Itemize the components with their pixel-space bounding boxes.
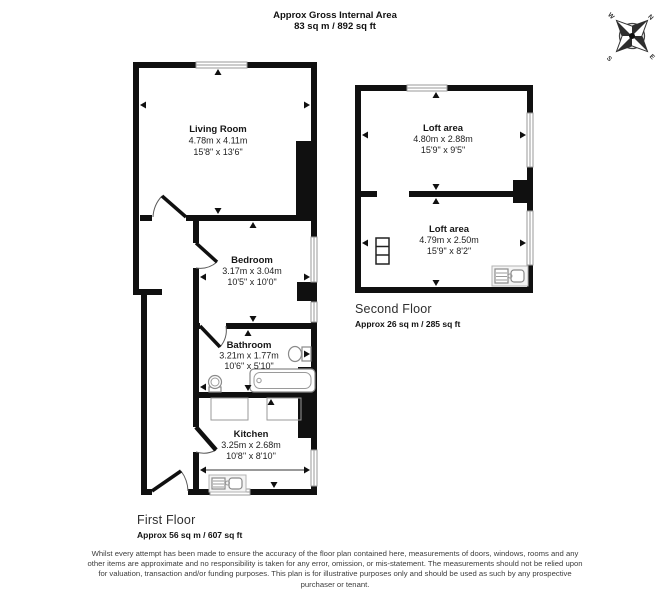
floorplan-page: Approx Gross Internal Area 83 sq m / 892… <box>0 0 670 593</box>
door-kitchen <box>196 427 216 453</box>
bathroom-metric: 3.21m x 1.77m <box>219 351 279 361</box>
loft-sink-icon <box>492 266 528 286</box>
chimney-breast-living <box>296 141 317 221</box>
kitchen-metric: 3.25m x 2.68m <box>221 440 281 450</box>
bathroom-label: Bathroom <box>227 340 272 351</box>
living-room-label: Living Room <box>189 124 247 135</box>
window-kitchen-side <box>311 450 317 486</box>
window-bedroom-upper <box>311 237 317 282</box>
bedroom-metric: 3.17m x 3.04m <box>222 266 282 276</box>
bedroom-imperial: 10'5" x 10'0" <box>227 277 276 287</box>
second-floor-area: Approx 26 sq m / 285 sq ft <box>355 319 460 329</box>
first-floor-room-labels: Living Room 4.78m x 4.11m 15'8" x 13'6" … <box>189 124 282 461</box>
door-bedroom <box>196 243 217 268</box>
bathtub-icon <box>250 369 315 392</box>
first-floor-doors <box>152 196 226 491</box>
door-front-entrance <box>152 471 188 491</box>
kitchen-imperial: 10'8'' x 8'10'' <box>226 451 276 461</box>
loft-lower-label: Loft area <box>429 224 470 235</box>
first-floor-plan: Living Room 4.78m x 4.11m 15'8" x 13'6" … <box>133 62 317 495</box>
door-bathroom <box>200 326 226 347</box>
loft-ladder-icon <box>376 238 389 264</box>
window-loft-top <box>407 85 447 91</box>
loft-upper-label: Loft area <box>423 123 464 134</box>
kitchen-label: Kitchen <box>234 429 269 440</box>
loft-upper-metric: 4.80m x 2.88m <box>413 134 473 144</box>
kitchen-counter-left <box>211 398 248 420</box>
chimney-breast-bedroom <box>297 282 317 301</box>
living-room-imperial: 15'8" x 13'6" <box>193 147 242 157</box>
first-floor-name: First Floor <box>137 513 242 527</box>
bathroom-imperial: 10'6" x 5'10" <box>224 361 273 371</box>
second-floor-plan: Loft area 4.80m x 2.88m 15'9" x 9'5" Lof… <box>355 85 533 293</box>
disclaimer-text: Whilst every attempt has been made to en… <box>86 549 584 590</box>
second-floor-room-labels: Loft area 4.80m x 2.88m 15'9" x 9'5" Lof… <box>413 123 479 256</box>
loft-upper-imperial: 15'9" x 9'5" <box>421 145 465 155</box>
living-room-metric: 4.78m x 4.11m <box>189 136 248 146</box>
loft-lower-metric: 4.79m x 2.50m <box>419 235 479 245</box>
second-floor-name: Second Floor <box>355 302 460 316</box>
first-floor-area: Approx 56 sq m / 607 sq ft <box>137 530 242 540</box>
kitchen-sink-icon <box>209 475 246 492</box>
door-living-room <box>153 196 186 217</box>
window-loft-right-upper <box>527 113 533 167</box>
window-bedroom-lower <box>311 302 317 322</box>
second-floor-caption: Second Floor Approx 26 sq m / 285 sq ft <box>355 302 460 329</box>
floorplan-drawing: Living Room 4.78m x 4.11m 15'8" x 13'6" … <box>0 0 670 593</box>
window-living-room <box>196 62 247 68</box>
loft-lower-imperial: 15'9" x 8'2" <box>427 246 471 256</box>
window-loft-right-lower <box>527 211 533 265</box>
chimney-breast-loft <box>513 180 533 203</box>
bedroom-label: Bedroom <box>231 255 273 266</box>
first-floor-caption: First Floor Approx 56 sq m / 607 sq ft <box>137 513 242 540</box>
bathroom-sink-icon <box>209 376 222 393</box>
